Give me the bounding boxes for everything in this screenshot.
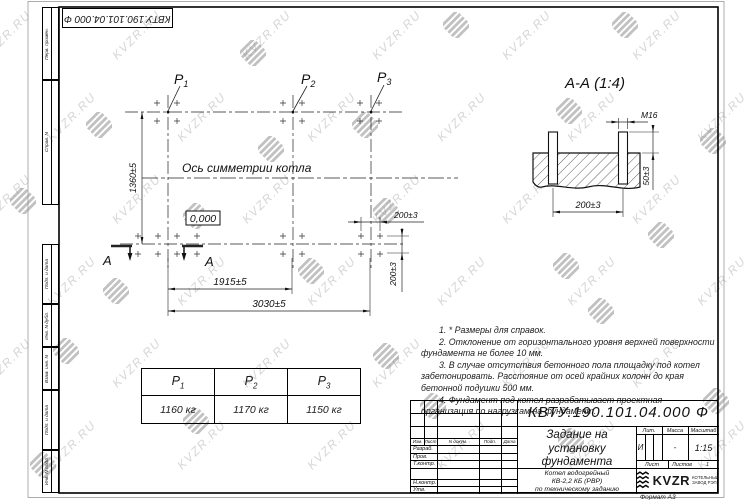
note-3: 3. В случае отсутствия бетонного пола пл… [421,360,715,395]
rev-header-podp: Подп. [479,439,501,444]
margin-label: Справ. N [45,132,50,152]
margin-box-vzam-inv: Взам. инв. N [42,347,59,390]
company-logo: KVZR КОТЕЛЬНЫЙ ЗАВОД РЭП [636,468,719,492]
margin-box-inv-podl: Инв. N подл. [42,450,59,493]
sig-nkontr: Н.контр. [413,480,436,486]
mass-header: Масса [662,428,688,434]
dim-50: 50±3 [641,166,651,185]
dim-200-vertical: 200±3 [388,262,398,287]
section-title: А-А (1:4) [564,75,625,92]
dim-1360: 1360±5 [128,162,138,193]
sheets-label: Листов [672,462,692,468]
point-leaders [167,85,384,113]
title-block-doc-number: КВТУ.190.101.04.000 Ф [518,404,719,421]
margin-box-sprav-n: Справ. N [42,80,59,205]
anchor-bolt-left [549,132,558,184]
drawing-sheet: KVZR.RUKVZR.RUKVZR.RUKVZR.RUKVZR.RUKVZR.… [0,0,750,500]
top-document-number-stamp: КВТУ.190.101.04.000 Ф [62,8,173,28]
section-texts: А-А (1:4) М16 50±3 200±3 [564,75,658,210]
margin-box-inv-dubl: Инв. N дубл. [42,304,59,347]
anchor-bolt-crosses [135,100,383,257]
load-table-header-row: P1 P2 P3 [142,369,361,396]
margin-box-podp-data-2: Подп. и дата [42,390,59,450]
rev-header-izm: Изм. [411,439,424,444]
boiler-symmetry-axis-label: Ось симметрии котла [182,161,312,175]
drawing-title: Задание на установку фундамента [518,429,636,470]
anchor-bolt-right [619,132,628,184]
logo-caption: КОТЕЛЬНЫЙ ЗАВОД РЭП [692,475,719,485]
plan-dimension-lines [142,112,424,311]
plan-dimension-arrows [141,112,404,312]
title-block: КВТУ.190.101.04.000 Ф Изм. Лист N докум.… [410,400,718,493]
kvzr-logo-text: KVZR [653,473,690,488]
scale-header: Масштаб [688,428,719,434]
mass-value: - [662,443,688,452]
section-view: А-А (1:4) М16 50±3 200±3 [533,75,659,217]
load-p3-value: 1150 кг [288,396,361,424]
lit-header: Лит. [636,428,662,434]
margin-box-podp-data-1: Подп. и дата [42,244,59,304]
top-stamp-text: КВТУ.190.101.04.000 Ф [64,13,171,24]
margin-label: Подп. и дата [45,405,50,435]
note-2: 2. Отклонение от горизонтального уровня … [421,337,715,360]
dim-m16: М16 [641,110,658,120]
scale-value: 1:15 [688,443,719,453]
dim-200-section: 200±3 [575,200,601,210]
margin-box-perv-primen: Перв. примен. [42,7,59,80]
sheets-value: 1 [706,462,709,468]
load-table: P1 P2 P3 1160 кг 1170 кг 1150 кг [141,368,361,424]
load-table-header-p1: P1 [142,369,215,396]
plan-texts: P1 P2 P3 Ось симметрии котла 0,000 1360±… [102,69,418,310]
section-letter-right: А [204,254,214,269]
point-p3-label: P3 [377,69,391,87]
rev-header-ndoc: N докум. [437,439,479,444]
rev-header-data: Дата [501,439,518,444]
point-p2-label: P2 [301,71,315,89]
sig-utv: Утв. [413,487,426,493]
format-label: Формат А3 [640,494,730,500]
dim-200-horizontal: 200±3 [393,210,418,220]
plan-view [111,85,458,316]
sig-razrab: Разраб. [413,446,433,452]
margin-label: Подп. и дата [45,259,50,289]
dim-3030: 3030±5 [252,299,286,310]
section-letter-left: А [102,253,112,268]
product-name: Котел водогрейный КВ-2,2 КБ (РВР) по тех… [518,470,636,494]
load-table-header-p2: P2 [215,369,288,396]
margin-label: Инв. N подл. [45,457,50,485]
load-table-value-row: 1160 кг 1170 кг 1150 кг [142,396,361,424]
margin-label: Взам. инв. N [45,355,50,383]
dim-1915: 1915±5 [213,277,247,288]
margin-label: Перв. примен. [45,28,50,60]
load-p1-value: 1160 кг [142,396,215,424]
section-cut-marks [111,246,203,261]
sig-tkontr: Т.контр. [413,461,435,467]
lit-value: И [636,443,645,452]
sheet-label: Лист [636,462,668,468]
note-1: 1. * Размеры для справок. [421,325,715,337]
load-p2-value: 1170 кг [215,396,288,424]
rev-header-list: Лист [424,439,437,444]
point-p1-label: P1 [174,71,188,89]
elevation-value: 0,000 [190,213,216,225]
load-table-header-p3: P3 [288,369,361,396]
sig-prov: Пров. [413,454,428,460]
margin-label: Инв. N дубл. [45,312,50,340]
kvzr-logo-mark-icon [636,471,651,489]
